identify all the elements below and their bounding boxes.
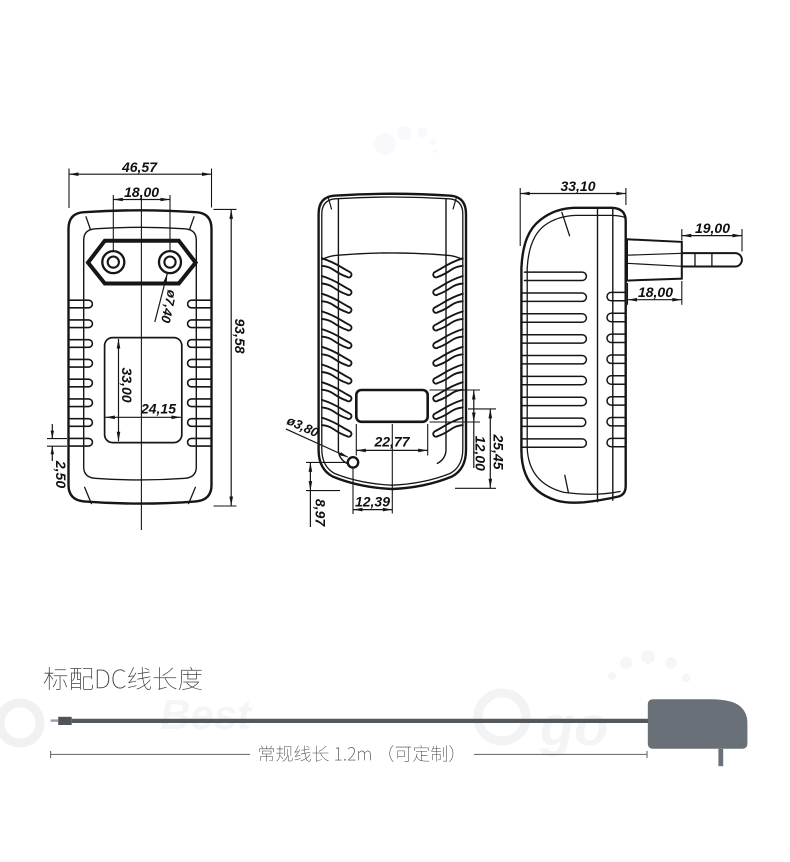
svg-text:93,58: 93,58 xyxy=(232,318,248,353)
svg-text:22,77: 22,77 xyxy=(373,434,410,450)
svg-text:18,00: 18,00 xyxy=(638,284,673,300)
svg-text:33,00: 33,00 xyxy=(119,367,135,402)
svg-text:go: go xyxy=(539,694,608,757)
svg-text:8,97: 8,97 xyxy=(313,499,329,527)
svg-text:2,50: 2,50 xyxy=(53,460,69,488)
svg-text:46,57: 46,57 xyxy=(121,159,158,175)
svg-text:19,00: 19,00 xyxy=(695,220,730,236)
svg-text:33,10: 33,10 xyxy=(560,178,595,194)
svg-text:18,00: 18,00 xyxy=(124,184,159,200)
svg-text:12,00: 12,00 xyxy=(472,436,488,471)
svg-text:24,15: 24,15 xyxy=(140,401,176,417)
svg-text:Best: Best xyxy=(160,691,253,738)
svg-text:12,39: 12,39 xyxy=(355,493,390,509)
svg-text:25,45: 25,45 xyxy=(491,433,507,469)
